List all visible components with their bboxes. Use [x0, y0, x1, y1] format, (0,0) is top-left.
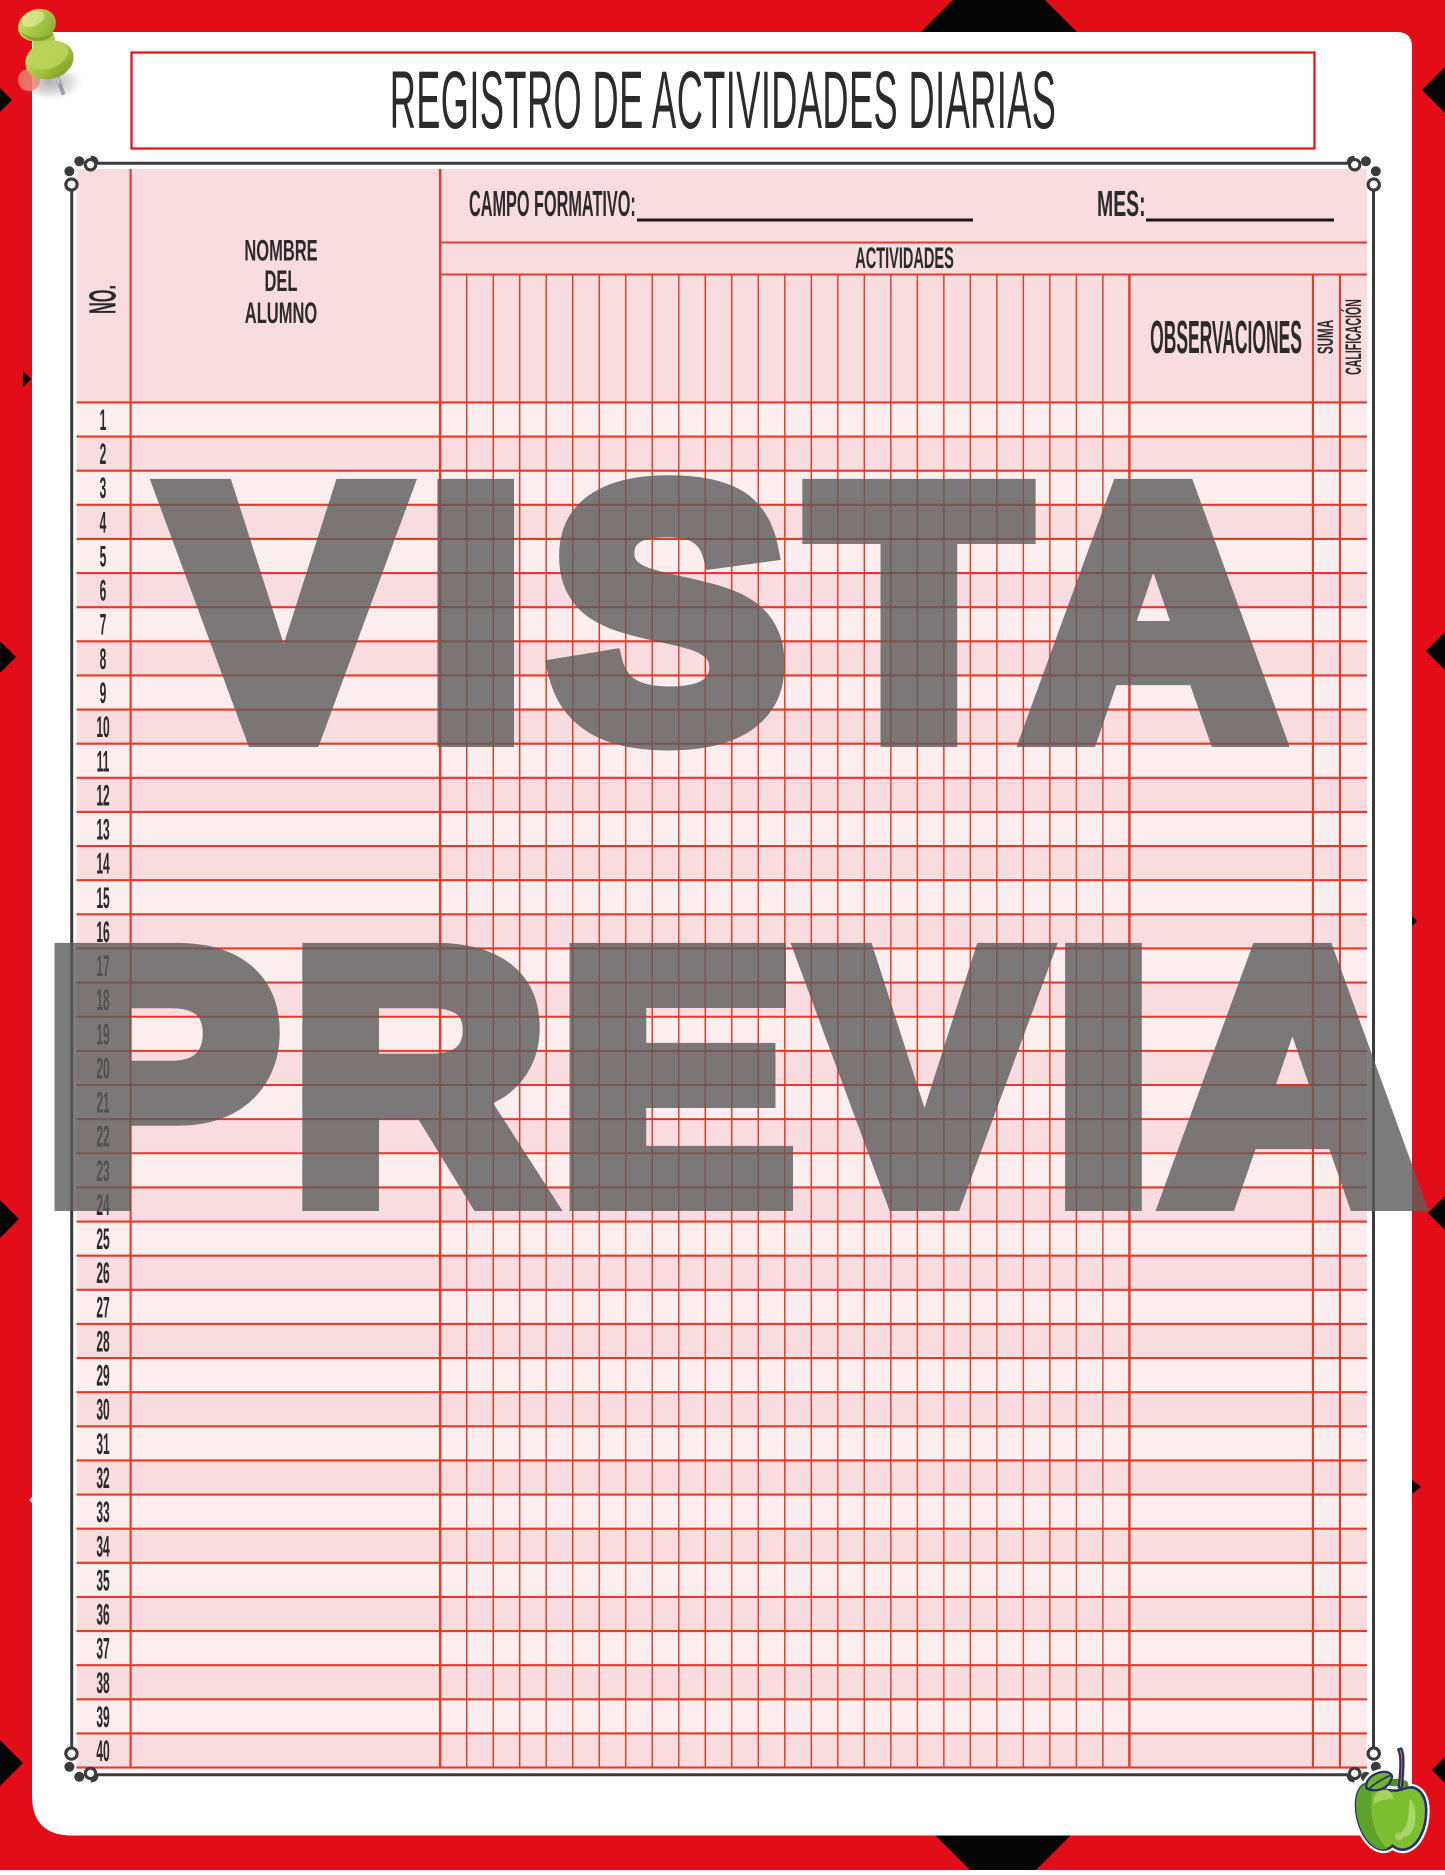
svg-text:DEL: DEL	[264, 265, 297, 298]
svg-text:REGISTRO DE ACTIVIDADES DIARIA: REGISTRO DE ACTIVIDADES DIARIAS	[390, 56, 1057, 147]
svg-text:27: 27	[96, 1290, 109, 1324]
svg-text:33: 33	[96, 1495, 109, 1529]
svg-text:29: 29	[96, 1358, 109, 1392]
svg-text:CALIFICACIÓN: CALIFICACIÓN	[1341, 299, 1366, 375]
svg-text:VISTA: VISTA	[166, 415, 1306, 809]
svg-text:NOMBRE: NOMBRE	[244, 235, 317, 268]
svg-text:34: 34	[96, 1529, 109, 1563]
svg-text:ACTIVIDADES: ACTIVIDADES	[855, 241, 954, 274]
svg-text:35: 35	[96, 1563, 109, 1597]
svg-text:31: 31	[96, 1426, 109, 1460]
svg-text:13: 13	[96, 812, 109, 846]
svg-text:36: 36	[96, 1597, 109, 1631]
svg-text:8: 8	[100, 641, 107, 675]
svg-text:30: 30	[96, 1392, 109, 1426]
svg-text:PREVIA: PREVIA	[44, 879, 1433, 1273]
svg-text:NO.: NO.	[83, 285, 125, 314]
svg-text:SUMA: SUMA	[1313, 320, 1338, 355]
svg-text:3: 3	[100, 471, 107, 505]
svg-text:38: 38	[96, 1665, 109, 1699]
svg-text:5: 5	[100, 539, 107, 573]
svg-text:CAMPO FORMATIVO:: CAMPO FORMATIVO:	[469, 184, 636, 224]
svg-text:4: 4	[100, 505, 107, 539]
svg-text:12: 12	[96, 778, 109, 812]
svg-text:39: 39	[96, 1699, 109, 1733]
svg-text:10: 10	[96, 710, 109, 744]
svg-text:11: 11	[97, 744, 110, 778]
svg-text:7: 7	[100, 607, 107, 641]
svg-text:9: 9	[100, 675, 107, 709]
svg-text:37: 37	[96, 1631, 109, 1665]
svg-text:ALUMNO: ALUMNO	[245, 297, 317, 330]
svg-text:14: 14	[96, 846, 109, 880]
svg-text:6: 6	[100, 573, 107, 607]
svg-text:28: 28	[96, 1324, 109, 1358]
svg-text:2: 2	[100, 437, 107, 471]
svg-text:32: 32	[96, 1460, 109, 1494]
svg-text:1: 1	[100, 402, 107, 436]
svg-text:MES:: MES:	[1097, 185, 1146, 225]
svg-text:40: 40	[96, 1733, 109, 1767]
svg-text:OBSERVACIONES: OBSERVACIONES	[1150, 313, 1302, 363]
